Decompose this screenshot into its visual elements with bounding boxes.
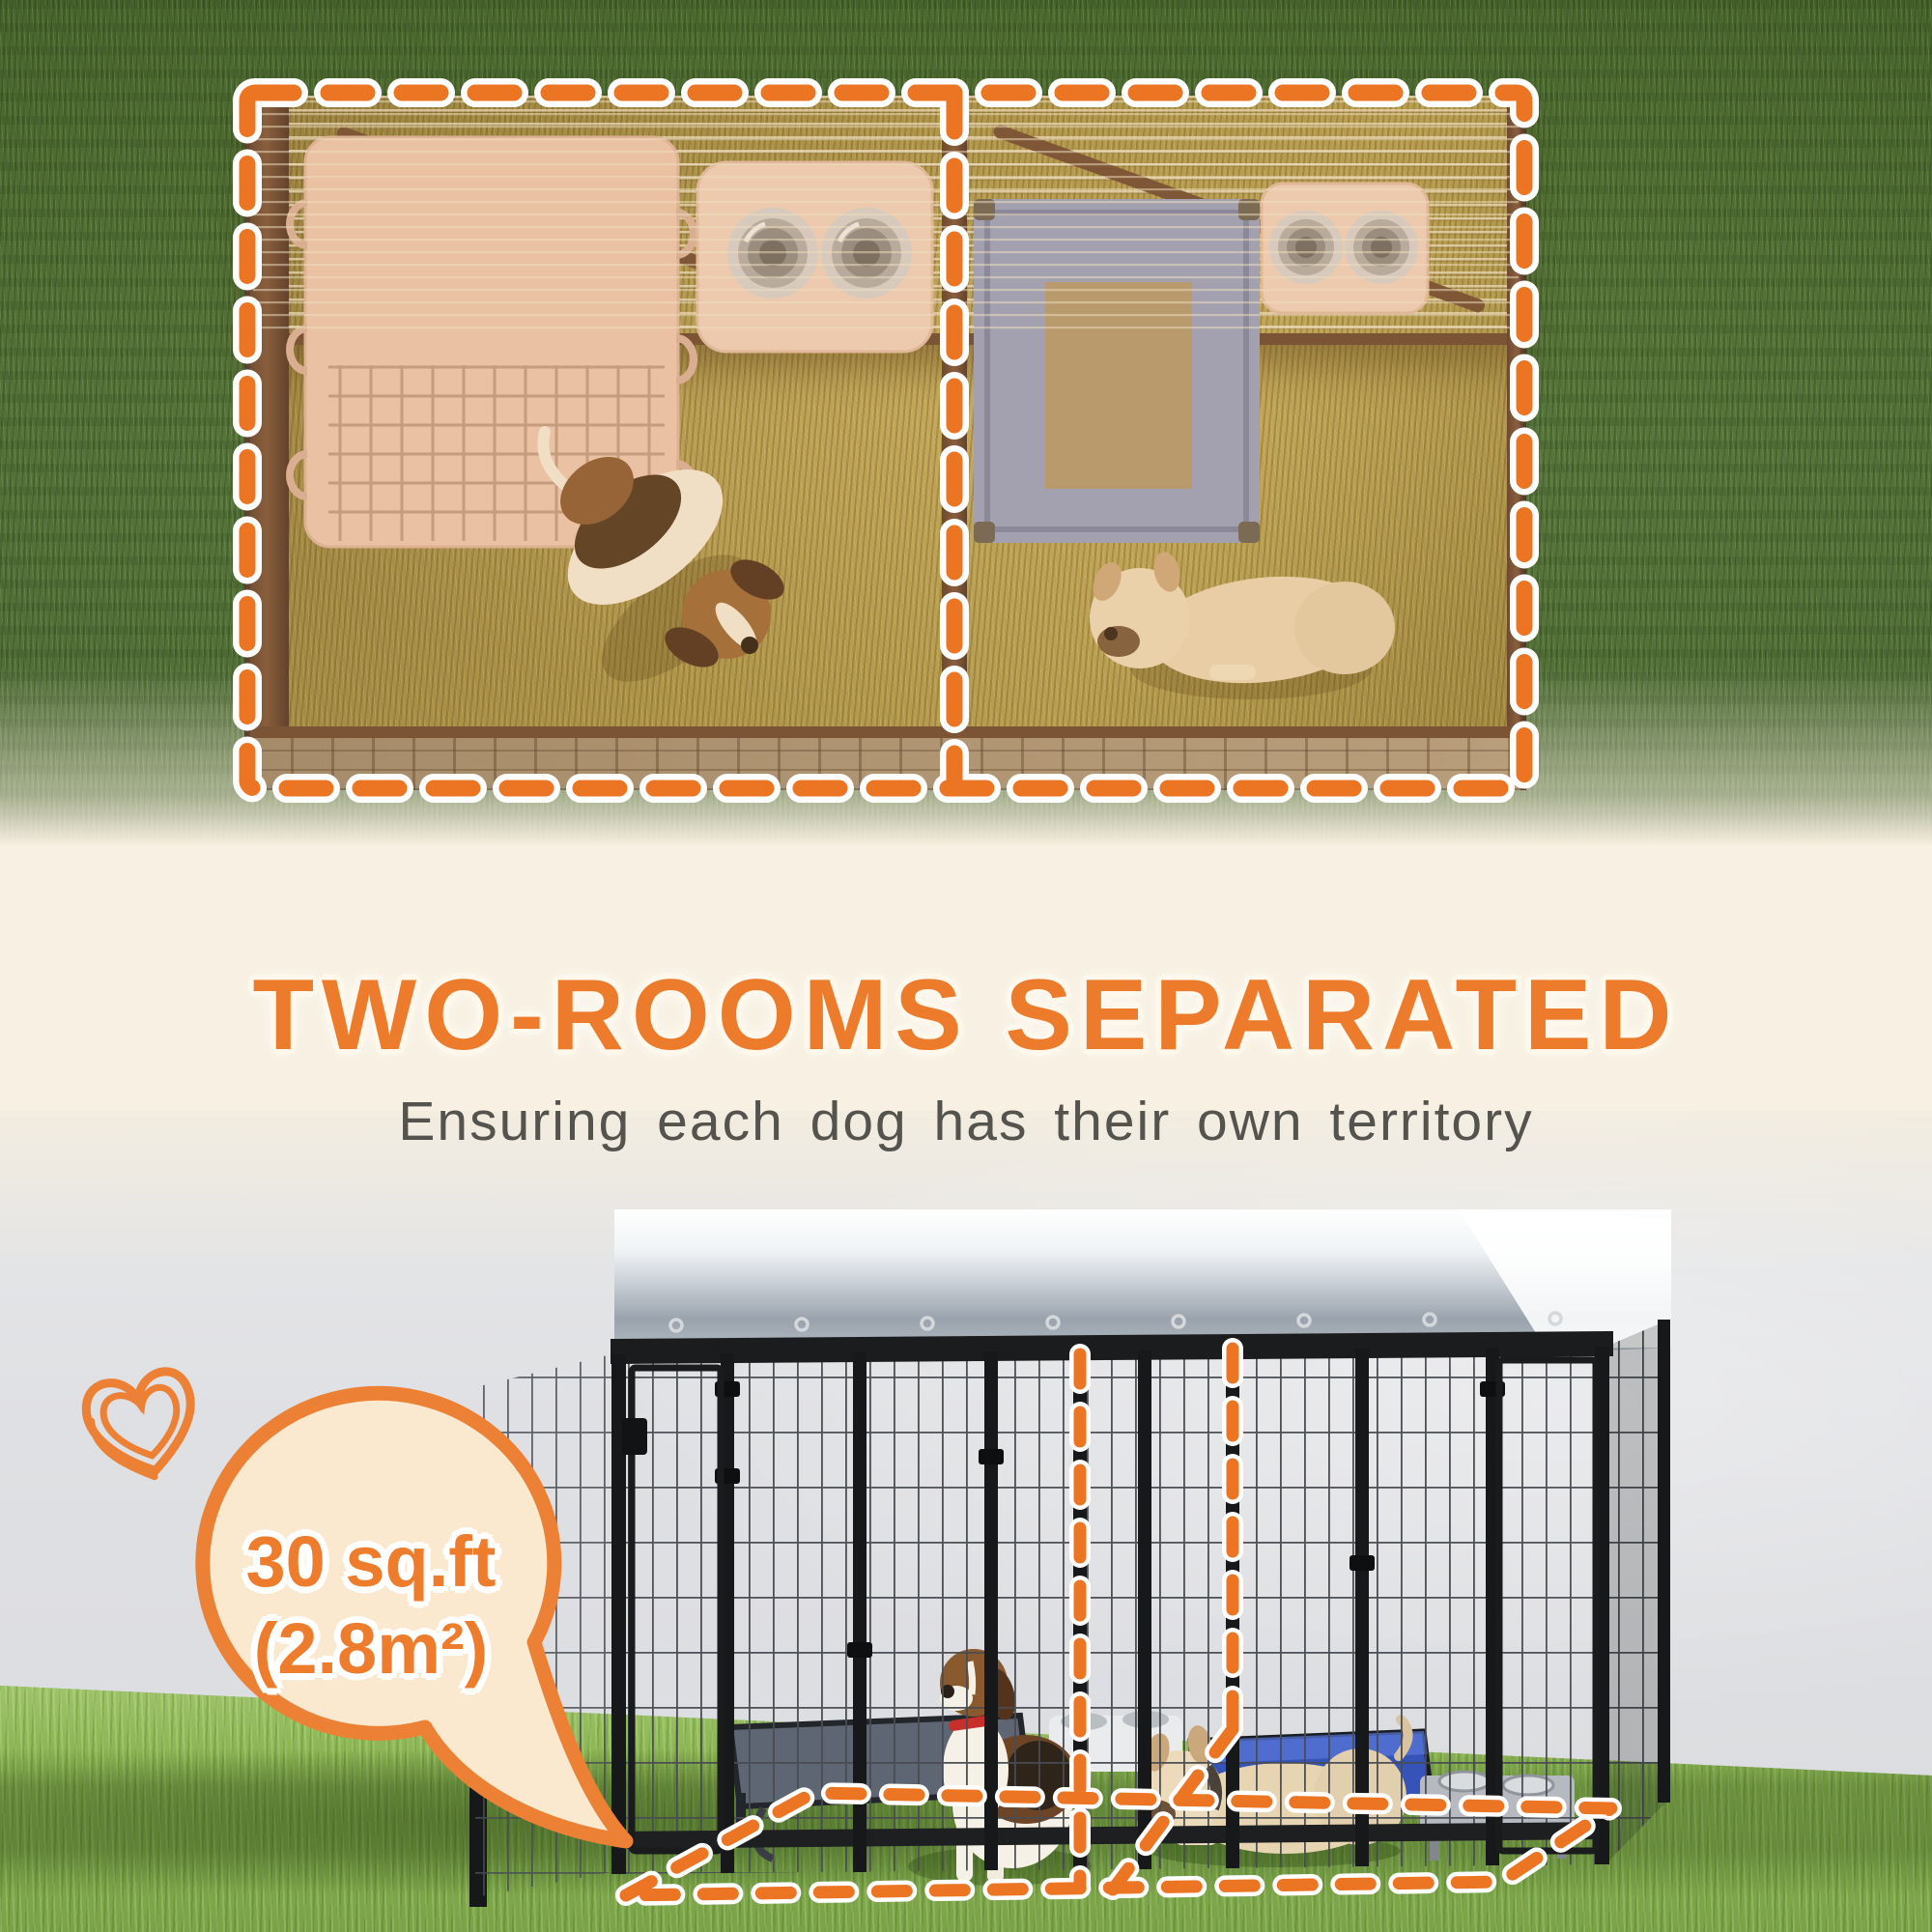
back-right-post (1658, 1320, 1670, 1803)
page-subtitle: Ensuring each dog has their own territor… (0, 1090, 1932, 1153)
door-latch (622, 1418, 647, 1455)
product-infographic: TWO-ROOMS SEPARATED Ensuring each dog ha… (0, 0, 1932, 1932)
back-mesh-panels (676, 1366, 1546, 1793)
size-badge-line1: 30 sq.ft (191, 1520, 551, 1603)
kennel-product (469, 1209, 1671, 1907)
size-badge-line2: (2.8m²) (191, 1607, 551, 1690)
page-title: TWO-ROOMS SEPARATED (0, 958, 1932, 1073)
sepia-tint (250, 96, 1520, 784)
heart-doodle-icon (81, 1367, 205, 1488)
